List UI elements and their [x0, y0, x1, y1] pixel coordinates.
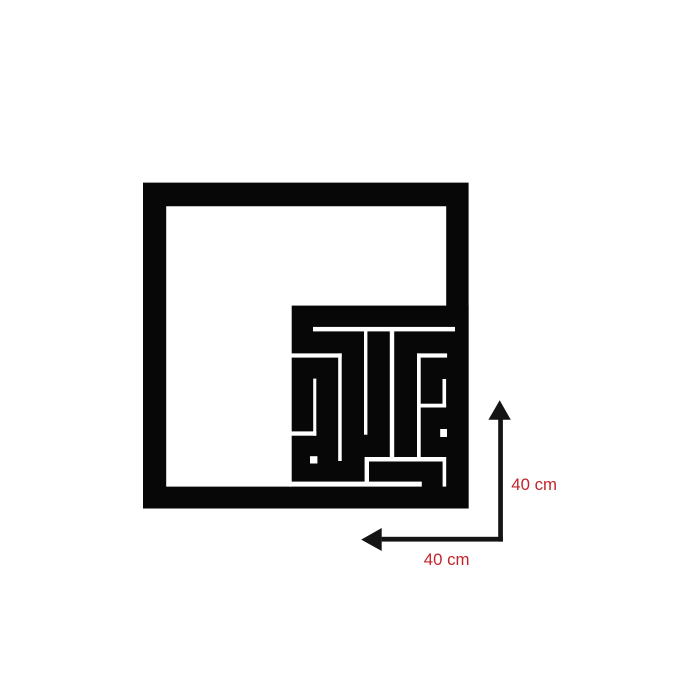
svg-text:40 cm: 40 cm: [424, 550, 470, 569]
svg-text:40 cm: 40 cm: [511, 475, 557, 494]
